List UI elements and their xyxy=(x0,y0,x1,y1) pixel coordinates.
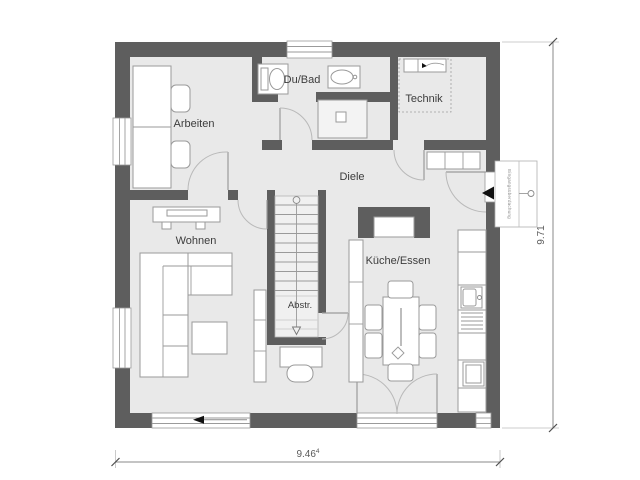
wardrobe xyxy=(427,152,480,169)
pier-kueche-right xyxy=(414,217,430,238)
sliding-terrace-door xyxy=(152,413,250,428)
chair xyxy=(388,364,413,381)
wall-kueche-top xyxy=(358,207,430,217)
floorplan-drawing: Arbeiten Du/Bad Technik Diele Wohnen Abs… xyxy=(0,0,640,480)
kitchen-sideboard xyxy=(349,240,363,382)
wall-bad-bottom-right xyxy=(312,140,393,150)
office-chair xyxy=(171,141,190,168)
coffee-table xyxy=(192,322,227,354)
dimension-bottom: 9.464 xyxy=(112,448,505,468)
pier-kueche-left xyxy=(358,217,374,238)
room-label-dubad: Du/Bad xyxy=(284,74,321,86)
dimension-width-sup: 4 xyxy=(316,448,320,455)
chair xyxy=(419,333,436,358)
dimension-width-value: 9.46 xyxy=(296,449,316,460)
stair-start-icon xyxy=(293,197,300,204)
room-label-diele: Diele xyxy=(339,171,364,183)
wall-right xyxy=(486,42,500,428)
room-label-abstr: Abstr. xyxy=(288,300,312,311)
wall-stair-right xyxy=(318,202,326,313)
wall-arbeiten-wohnen xyxy=(129,190,188,200)
kitchen-sink-icon xyxy=(461,287,482,308)
chair xyxy=(419,305,436,330)
stove-icon xyxy=(463,362,484,386)
window-wohnen xyxy=(113,308,131,368)
window-kitchen-corner xyxy=(476,413,491,428)
canopy-post-icon xyxy=(528,191,534,197)
dimension-height-label: 9.71 xyxy=(536,225,547,245)
sink-icon xyxy=(328,66,360,88)
chair xyxy=(388,281,413,298)
stool xyxy=(287,365,313,382)
room-label-arbeiten: Arbeiten xyxy=(174,118,215,130)
wall-left xyxy=(115,42,130,428)
desk xyxy=(133,66,171,188)
wall-stub-diele xyxy=(228,190,238,200)
shower-icon xyxy=(318,100,367,138)
window-arbeiten xyxy=(113,118,131,165)
staircase xyxy=(275,196,318,337)
wall-stair-bottom xyxy=(267,337,326,345)
wall-stair-left xyxy=(267,190,275,345)
dimension-width-label: 9.464 xyxy=(296,448,319,460)
chair xyxy=(365,305,382,330)
wall-technik-bottom xyxy=(424,140,486,150)
window-top xyxy=(287,41,332,58)
heating-unit-icon xyxy=(404,59,446,72)
kitchen-niche-cabinet xyxy=(374,217,414,237)
room-label-wohnen: Wohnen xyxy=(176,235,217,247)
wall-bad-bottom-left xyxy=(262,140,282,150)
room-label-technik: Technik xyxy=(405,93,443,105)
office-chair xyxy=(171,85,190,112)
room-label-kueche: Küche/Essen xyxy=(366,255,431,267)
entrance-note-label: Eingangsüberdachung xyxy=(507,169,512,219)
chair xyxy=(365,333,382,358)
dimension-right: 9.71 xyxy=(502,38,559,432)
wall-bad-technik xyxy=(390,56,398,140)
wall-stair-right-top xyxy=(318,190,326,202)
shelf xyxy=(254,290,266,382)
floorplan-canvas: Arbeiten Du/Bad Technik Diele Wohnen Abs… xyxy=(0,0,640,480)
